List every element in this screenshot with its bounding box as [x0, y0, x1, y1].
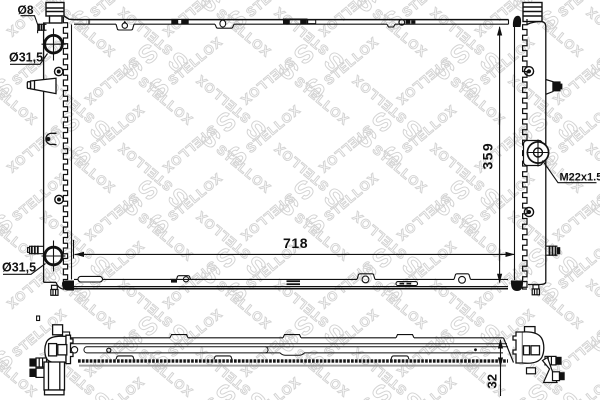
- svg-text:M22x1.5: M22x1.5: [560, 172, 600, 184]
- svg-text:Ø31,5: Ø31,5: [9, 51, 43, 65]
- svg-text:Ø31,5: Ø31,5: [2, 261, 36, 275]
- svg-text:718: 718: [283, 235, 308, 251]
- svg-text:32: 32: [485, 374, 500, 388]
- svg-text:359: 359: [480, 142, 496, 170]
- svg-text:Ø8: Ø8: [18, 3, 34, 17]
